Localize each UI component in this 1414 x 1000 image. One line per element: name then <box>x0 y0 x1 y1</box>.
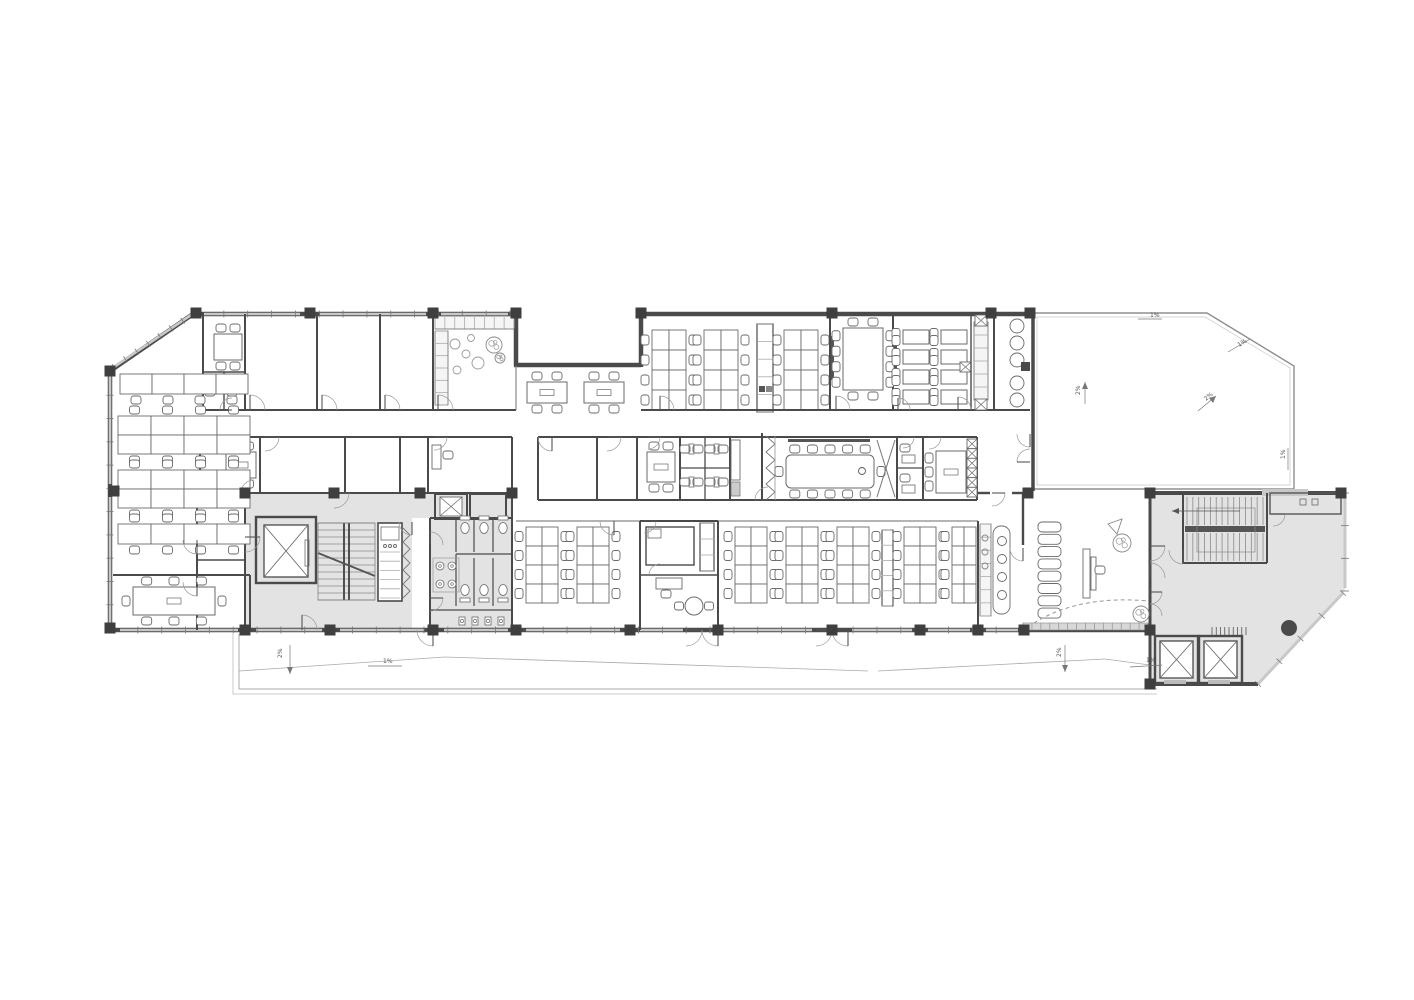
elevator <box>1204 641 1237 678</box>
desk-cluster <box>515 527 569 603</box>
urinal <box>485 617 491 625</box>
door <box>265 437 279 451</box>
chair <box>661 590 671 598</box>
meeting-table <box>214 324 242 370</box>
toilet <box>498 516 508 534</box>
desk-cluster <box>641 330 697 410</box>
canopy-ridge <box>239 657 445 671</box>
storage-cabinet <box>757 324 773 412</box>
core-corridor <box>412 518 430 630</box>
lounge-table <box>1010 376 1024 390</box>
desk-cluster <box>724 527 778 603</box>
bar-stool <box>998 555 1007 564</box>
desk-cluster <box>693 330 749 410</box>
bar-stool <box>998 573 1007 582</box>
sink <box>436 562 444 570</box>
chair <box>718 478 728 486</box>
svg-text:2%: 2% <box>1056 647 1063 657</box>
plant <box>1133 606 1149 622</box>
service-elevator <box>440 497 462 516</box>
conference-table <box>832 318 894 400</box>
chair <box>705 478 715 486</box>
lounge-table <box>1010 319 1024 333</box>
storage-cabinet <box>700 523 714 571</box>
door <box>992 493 1005 506</box>
elevator <box>264 525 308 577</box>
cafe-table <box>584 372 624 413</box>
desk-cluster <box>941 527 976 603</box>
lounge-table <box>1010 393 1024 407</box>
window-band <box>114 313 194 367</box>
floor-plan: 2%2%1%1%2%2%1%1%1% <box>0 0 1414 1000</box>
svg-text:1%: 1% <box>1280 449 1287 459</box>
chair <box>900 474 910 482</box>
column-round <box>1281 620 1297 636</box>
svg-text:1%: 1% <box>383 658 393 665</box>
chair <box>693 478 703 486</box>
sink <box>448 562 456 570</box>
plant <box>1113 534 1131 552</box>
terrace-outline <box>1033 313 1294 489</box>
slope-arrow <box>1062 665 1068 672</box>
chair <box>1095 566 1105 574</box>
stool <box>468 335 475 342</box>
exec-desk <box>646 527 694 565</box>
boardroom-table <box>775 445 885 498</box>
round-table <box>675 597 714 615</box>
svg-text:1%: 1% <box>1236 338 1248 349</box>
projector <box>960 362 971 372</box>
whiteboard <box>788 439 870 442</box>
locker-unit <box>378 523 402 601</box>
terrace-door <box>1017 449 1030 462</box>
stool <box>462 350 470 358</box>
printer <box>731 482 740 496</box>
chair <box>705 445 715 453</box>
training-table <box>892 349 929 366</box>
stool <box>472 357 484 369</box>
storage-cabinet <box>731 440 740 480</box>
door <box>322 395 337 410</box>
bar-stool <box>998 537 1007 546</box>
urinal <box>472 617 478 625</box>
lounge-table <box>1010 336 1024 350</box>
booth-table <box>902 485 915 493</box>
terrace-door <box>1017 434 1030 447</box>
door <box>250 395 265 410</box>
door <box>929 437 941 449</box>
chair <box>693 445 703 453</box>
reception-desk <box>1083 549 1090 598</box>
slope-arrow <box>1082 382 1088 389</box>
folding-partition <box>766 436 775 500</box>
toilet <box>479 585 489 603</box>
cafe-table <box>527 372 567 413</box>
appliance <box>975 399 987 410</box>
canopy-ridge <box>878 659 1105 671</box>
chair <box>443 451 453 459</box>
desk <box>656 578 682 589</box>
desk-cluster <box>773 330 829 410</box>
equipment <box>766 386 772 392</box>
desk-cluster <box>826 527 880 603</box>
bar-stool <box>998 591 1007 600</box>
training-table <box>892 329 929 346</box>
floor-plan-page: 2%2%1%1%2%2%1%1%1% <box>0 0 1414 1000</box>
chair <box>718 445 728 453</box>
desk-cluster <box>775 527 829 603</box>
elevator-door <box>1164 680 1186 684</box>
door <box>607 437 621 451</box>
desk-cluster <box>893 527 947 603</box>
slope-arrow <box>287 667 293 674</box>
urinal <box>498 617 504 625</box>
training-table <box>930 329 967 346</box>
stool <box>453 366 461 374</box>
desk-bench <box>120 374 248 404</box>
sink <box>436 580 444 588</box>
svg-text:1%: 1% <box>1146 657 1156 664</box>
chair <box>680 478 690 486</box>
appliance <box>975 315 987 326</box>
door <box>538 437 552 451</box>
elevator-door <box>1208 680 1230 684</box>
storage-cabinet <box>882 530 893 606</box>
training-table <box>930 389 967 406</box>
whiteboard <box>831 336 834 380</box>
door <box>1010 548 1023 561</box>
desk-bench <box>118 514 250 554</box>
meeting-table <box>122 577 226 625</box>
wall-fixture <box>1021 362 1030 371</box>
sink <box>448 580 456 588</box>
door <box>385 395 400 410</box>
locker-column <box>967 439 977 497</box>
meeting-table <box>647 442 675 492</box>
svg-text:2%: 2% <box>277 648 284 658</box>
decor <box>1108 519 1122 534</box>
urinal <box>459 617 465 625</box>
canopy-ridge <box>445 657 868 671</box>
chair <box>680 445 690 453</box>
booth-table <box>902 455 915 463</box>
plant <box>486 337 502 353</box>
toilet <box>498 585 508 603</box>
training-table <box>892 369 929 386</box>
equipment <box>759 386 765 392</box>
entrance-door <box>686 630 702 646</box>
bar-top <box>993 526 1010 614</box>
toilet <box>460 585 470 603</box>
svg-text:2%: 2% <box>1075 385 1082 395</box>
stool <box>450 339 460 349</box>
toilet <box>479 516 489 534</box>
svg-text:1%: 1% <box>1150 312 1160 319</box>
terrace-outline <box>1037 317 1290 485</box>
banquette <box>1038 522 1061 618</box>
plant <box>495 353 505 363</box>
toilet <box>460 516 470 534</box>
elevator <box>1160 641 1193 678</box>
desk-cluster <box>566 527 620 603</box>
